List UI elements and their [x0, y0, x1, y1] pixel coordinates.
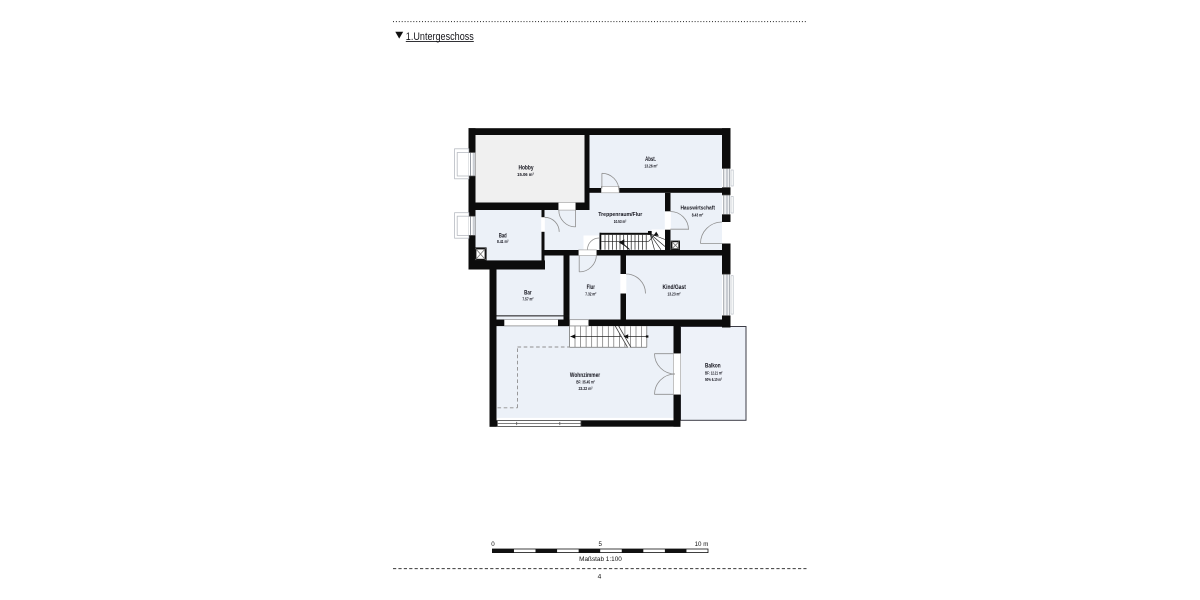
svg-text:Balkon: Balkon [705, 364, 721, 370]
svg-text:Treppenraum/Flur: Treppenraum/Flur [598, 212, 643, 218]
svg-text:7.57 m²: 7.57 m² [522, 297, 533, 302]
svg-text:13.26 m²: 13.26 m² [645, 163, 658, 168]
svg-text:23.22 m²: 23.22 m² [578, 386, 593, 391]
svg-text:8.41 m²: 8.41 m² [497, 239, 509, 244]
svg-text:1.Untergeschoss: 1.Untergeschoss [406, 31, 474, 43]
svg-text:Flur: Flur [587, 285, 596, 291]
svg-text:Hauswirtschaft: Hauswirtschaft [680, 206, 715, 212]
svg-text:Maßstab 1:100: Maßstab 1:100 [579, 556, 622, 563]
svg-text:Wohnzimmer: Wohnzimmer [570, 373, 601, 379]
svg-text:8.43 m²: 8.43 m² [692, 213, 704, 218]
svg-text:7.32 m²: 7.32 m² [585, 292, 596, 297]
svg-text:15.06 m²: 15.06 m² [517, 172, 534, 177]
svg-text:13.23 m²: 13.23 m² [668, 292, 681, 297]
svg-text:10 m: 10 m [695, 541, 709, 548]
svg-text:50% 6.10 m²: 50% 6.10 m² [705, 377, 722, 382]
svg-text:0: 0 [491, 541, 495, 548]
svg-text:4: 4 [598, 573, 602, 580]
svg-text:5: 5 [598, 541, 602, 548]
svg-text:10.53 m²: 10.53 m² [614, 219, 627, 224]
svg-text:Hobby: Hobby [519, 166, 535, 172]
svg-text:Abst.: Abst. [645, 157, 656, 163]
svg-text:Bar: Bar [524, 291, 532, 297]
svg-text:Kind/Gast: Kind/Gast [663, 285, 686, 291]
svg-text:BF: 35.45 m²: BF: 35.45 m² [576, 379, 595, 384]
svg-text:BF: 12.21 m²: BF: 12.21 m² [705, 371, 723, 376]
